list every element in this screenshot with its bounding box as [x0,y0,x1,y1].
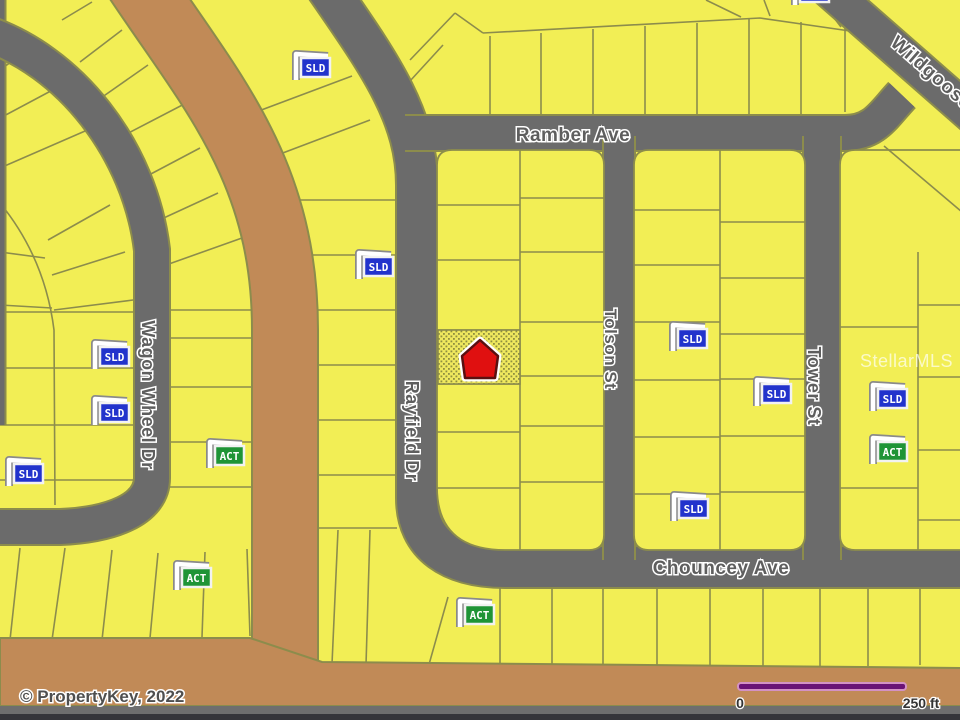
scale-bar-line [738,683,906,690]
sold-flag-marker[interactable]: SLD [673,325,707,351]
sold-flag-marker[interactable]: SLD [296,54,330,80]
bottom-gray-strip [0,706,960,714]
copyright-text: © PropertyKey, 2022 [20,687,184,706]
active-flag-marker[interactable]: ACT [177,564,211,590]
bottom-dark-strip [0,714,960,720]
flag-label: SLD [105,351,125,364]
sold-flag-marker[interactable]: SLD [674,495,708,521]
street-label-chouncey-ave: Chouncey Ave [653,558,790,579]
sold-flag-marker[interactable]: SLD [95,399,129,425]
flag-label: SLD [369,261,389,274]
scale-start-label: 0 [736,695,744,711]
sold-flag-marker[interactable]: SLD [873,385,907,411]
map-canvas: SLDSLDSLDSLDSLDSLDSLDSLDSLDSLDACTACTACTA… [0,0,960,720]
street-label-tower-st: Tower St [804,347,824,426]
flag-label: ACT [470,609,490,622]
flag-label: ACT [187,572,207,585]
sold-flag-marker[interactable]: SLD [9,460,43,486]
flag-label: SLD [684,503,704,516]
flag-label: SLD [19,468,39,481]
active-flag-marker[interactable]: ACT [460,601,494,627]
street-label-tolson-st: Tolson St [601,309,620,390]
flag-label: SLD [306,62,326,75]
stellar-mls-watermark: StellarMLS [860,351,953,371]
active-flag-marker[interactable]: ACT [873,438,907,464]
sold-flag-marker[interactable]: SLD [359,253,393,279]
block-tower-east [840,150,960,550]
flag-label: SLD [105,407,125,420]
flag-label: ACT [883,446,903,459]
flag-label: SLD [883,393,903,406]
sold-flag-marker[interactable]: SLD [757,380,791,406]
street-label-wagon-wheel-dr: Wagon Wheel Dr [138,320,158,469]
sold-flag-marker[interactable]: SLD [95,343,129,369]
street-label-ramber-ave: Ramber Ave [516,125,630,146]
flag-label: SLD [683,333,703,346]
active-flag-marker[interactable]: ACT [210,442,244,468]
flag-label: SLD [767,388,787,401]
scale-end-label: 250 ft [903,695,940,711]
flag-label: ACT [220,450,240,463]
parcel-map-viewport: SLDSLDSLDSLDSLDSLDSLDSLDSLDSLDACTACTACTA… [0,0,960,720]
street-label-rayfield-dr: Rayfield Dr [402,381,422,482]
